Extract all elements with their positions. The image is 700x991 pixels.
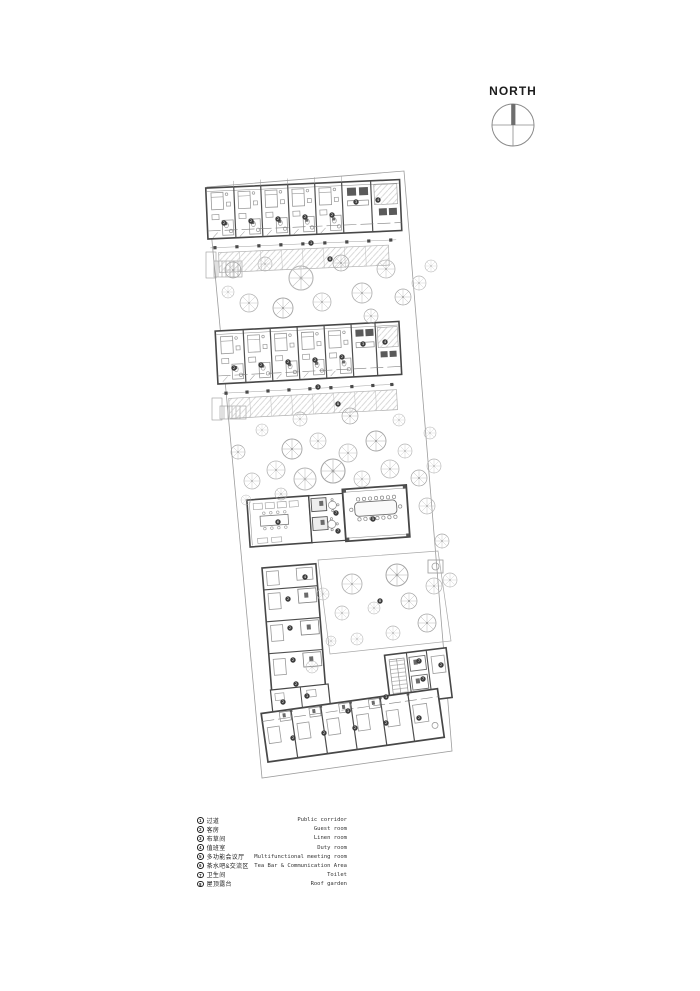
tree-icon <box>412 276 426 290</box>
svg-text:5: 5 <box>372 517 374 521</box>
tree-icon <box>342 408 358 424</box>
room-number-marker: 4 <box>382 339 387 344</box>
tree-icon <box>241 495 251 505</box>
svg-text:7: 7 <box>337 529 339 533</box>
svg-text:8: 8 <box>329 257 331 261</box>
legend-number-badge: 6 <box>197 862 204 869</box>
guest-room-strip-top <box>205 174 403 273</box>
svg-text:2: 2 <box>314 358 316 362</box>
tree-icon <box>240 294 258 312</box>
tree-icon <box>425 260 437 272</box>
tree-icon <box>386 626 400 640</box>
room-number-marker: 2 <box>231 365 236 370</box>
room-number-marker: 2 <box>438 662 443 667</box>
room-number-marker: 1 <box>304 693 309 698</box>
room-number-marker: 2 <box>290 657 295 662</box>
legend-label-en: Roof garden <box>311 881 347 887</box>
room-number-marker: 8 <box>327 256 332 261</box>
legend-row-meeting-room: 5 多功能会议厅 Multifunctional meeting room <box>197 853 347 860</box>
tree-icon <box>427 459 441 473</box>
north-compass-icon <box>488 100 538 150</box>
room-number-marker: 2 <box>416 715 421 720</box>
tree-icon <box>419 498 435 514</box>
room-number-marker: 2 <box>302 214 307 219</box>
legend-label-en: Tea Bar & Communication Area <box>254 863 347 869</box>
legend-label-zh: 茶水吧&交流区 <box>207 861 249 870</box>
legend-row-tea-bar: 6 茶水吧&交流区 Tea Bar & Communication Area <box>197 862 347 869</box>
tree-icon <box>225 262 241 278</box>
svg-text:1: 1 <box>347 709 349 713</box>
svg-text:6: 6 <box>277 520 279 524</box>
tree-icon <box>267 461 285 479</box>
svg-text:2: 2 <box>289 626 291 630</box>
legend-label-en: Multifunctional meeting room <box>254 854 347 860</box>
tree-icon <box>282 439 302 459</box>
svg-text:2: 2 <box>282 700 284 704</box>
legend-label-zh: 布草间 <box>207 834 226 843</box>
legend-row-duty-room: 4 值班室 Duty room <box>197 844 347 851</box>
room-number-marker: 1 <box>383 694 388 699</box>
room-number-marker: 3 <box>353 199 358 204</box>
room-number-marker: 2 <box>293 681 298 686</box>
tree-icon <box>256 424 268 436</box>
legend-row-guest-room: 2 客房 Guest room <box>197 826 347 833</box>
legend-number-badge: 7 <box>197 872 204 879</box>
legend-number-badge: 4 <box>197 844 204 851</box>
room-number-marker: 2 <box>329 212 334 217</box>
svg-text:2: 2 <box>354 726 356 730</box>
legend-row-public-corridor: 1 过道 Public corridor <box>197 817 347 824</box>
svg-text:2: 2 <box>292 736 294 740</box>
room-number-marker: 2 <box>287 625 292 630</box>
svg-text:2: 2 <box>233 366 235 370</box>
courtyard <box>318 551 451 654</box>
legend-number-badge: 1 <box>197 817 204 824</box>
legend-label-en: Toilet <box>327 872 347 878</box>
tree-icon <box>310 433 326 449</box>
svg-text:8: 8 <box>379 599 381 603</box>
tree-icon <box>335 606 349 620</box>
tree-icon <box>244 473 260 489</box>
svg-text:2: 2 <box>223 221 225 225</box>
svg-text:2: 2 <box>341 355 343 359</box>
tree-icon <box>354 471 370 487</box>
svg-text:2: 2 <box>287 597 289 601</box>
room-number-marker: 2 <box>321 730 326 735</box>
svg-text:2: 2 <box>418 716 420 720</box>
svg-text:4: 4 <box>304 575 306 579</box>
tree-icon <box>258 257 272 271</box>
roof-garden-band-top <box>219 245 390 272</box>
meeting-room <box>342 485 409 541</box>
tree-icon <box>393 414 405 426</box>
room-number-marker: 2 <box>258 362 263 367</box>
tree-icon <box>395 289 411 305</box>
svg-text:2: 2 <box>260 363 262 367</box>
svg-text:7: 7 <box>335 511 337 515</box>
tree-icon <box>352 283 372 303</box>
tree-icon <box>313 293 331 311</box>
tree-icon <box>222 286 234 298</box>
legend-label-zh: 屋顶露台 <box>207 879 232 888</box>
room-number-marker: 7 <box>420 676 425 681</box>
room-number-marker: 2 <box>275 216 280 221</box>
tree-icon <box>424 427 436 439</box>
room-number-marker: 8 <box>377 598 382 603</box>
room-number-marker: 7 <box>333 510 338 515</box>
room-number-marker: 2 <box>383 720 388 725</box>
north-label: NORTH <box>487 84 539 98</box>
tree-icon <box>289 266 313 290</box>
room-number-marker: 1 <box>315 384 320 389</box>
tree-icon <box>342 574 362 594</box>
svg-text:3: 3 <box>355 200 357 204</box>
room-number-marker: 4 <box>302 574 307 579</box>
tree-icon <box>411 470 427 486</box>
room-number-marker: 1 <box>345 708 350 713</box>
toilet-core <box>309 493 346 542</box>
legend: 1 过道 Public corridor 2 客房 Guest room 3 布… <box>197 817 347 887</box>
tree-icon <box>339 444 357 462</box>
room-number-marker: 2 <box>248 218 253 223</box>
legend-label-zh: 卫生间 <box>207 870 226 879</box>
legend-row-toilet: 7 卫生间 Toilet <box>197 872 347 879</box>
tree-icon <box>326 636 336 646</box>
svg-text:7: 7 <box>422 677 424 681</box>
floor-plan-drawing: 2222234182222234186775422228772121222221 <box>0 0 700 991</box>
room-number-marker: 2 <box>285 596 290 601</box>
room-number-marker: 2 <box>352 725 357 730</box>
tree-icon <box>306 661 318 673</box>
room-number-marker: 2 <box>280 699 285 704</box>
legend-label-zh: 过道 <box>207 816 220 825</box>
room-number-marker: 2 <box>290 735 295 740</box>
tree-icon <box>293 412 307 426</box>
tree-icon <box>401 593 417 609</box>
tree-icon <box>398 444 412 458</box>
legend-label-en: Guest room <box>314 826 347 832</box>
legend-row-linen-room: 3 布草间 Linen room <box>197 835 347 842</box>
room-number-marker: 2 <box>221 220 226 225</box>
tree-icon <box>368 602 380 614</box>
legend-label-zh: 值班室 <box>207 843 226 852</box>
meeting-hall-block <box>247 485 410 548</box>
guest-room-strip-second <box>215 321 403 419</box>
legend-label-en: Public corridor <box>297 817 347 823</box>
svg-text:2: 2 <box>385 721 387 725</box>
svg-text:2: 2 <box>331 213 333 217</box>
tree-icon <box>366 431 386 451</box>
legend-label-zh: 客房 <box>207 825 220 834</box>
legend-label-zh: 多功能会议厅 <box>207 852 245 861</box>
tree-icon <box>351 633 363 645</box>
svg-text:2: 2 <box>323 731 325 735</box>
room-number-marker: 4 <box>375 197 380 202</box>
garden-trees <box>222 255 457 673</box>
svg-text:1: 1 <box>310 241 312 245</box>
svg-text:1: 1 <box>306 694 308 698</box>
tree-icon <box>435 534 449 548</box>
svg-text:4: 4 <box>384 340 386 344</box>
tree-icon <box>426 578 442 594</box>
room-number-marker: 5 <box>370 516 375 521</box>
legend-label-en: Linen room <box>314 835 347 841</box>
tree-icon <box>294 468 316 490</box>
room-number-marker: 2 <box>339 354 344 359</box>
tree-icon <box>333 255 349 271</box>
svg-text:2: 2 <box>295 682 297 686</box>
room-number-marker: 1 <box>308 240 313 245</box>
tree-icon <box>386 564 408 586</box>
room-number-marker: 2 <box>312 357 317 362</box>
room-number-marker: 7 <box>335 528 340 533</box>
tree-icon <box>275 488 287 500</box>
legend-number-badge: 8 <box>197 881 204 888</box>
svg-text:4: 4 <box>377 198 379 202</box>
room-number-marker: 7 <box>416 658 421 663</box>
tree-icon <box>381 460 399 478</box>
tree-icon <box>317 588 329 600</box>
tree-icon <box>443 573 457 587</box>
svg-text:2: 2 <box>292 658 294 662</box>
drawing-sheet: 2222234182222234186775422228772121222221… <box>0 0 700 991</box>
svg-text:2: 2 <box>304 215 306 219</box>
tree-icon <box>418 614 436 632</box>
svg-text:8: 8 <box>337 402 339 406</box>
svg-text:1: 1 <box>385 695 387 699</box>
legend-number-badge: 5 <box>197 853 204 860</box>
tree-icon <box>273 298 293 318</box>
svg-text:2: 2 <box>287 360 289 364</box>
svg-text:7: 7 <box>418 659 420 663</box>
room-number-marker: 8 <box>335 401 340 406</box>
svg-text:2: 2 <box>250 219 252 223</box>
svg-text:1: 1 <box>317 385 319 389</box>
tree-icon <box>321 459 345 483</box>
guest-room-strip-lower-left <box>262 564 326 696</box>
svg-text:2: 2 <box>277 217 279 221</box>
room-number-marker: 6 <box>275 519 280 524</box>
legend-number-badge: 3 <box>197 835 204 842</box>
svg-text:3: 3 <box>362 342 364 346</box>
room-number-marker: 3 <box>360 341 365 346</box>
tree-icon <box>364 309 378 323</box>
legend-number-badge: 2 <box>197 826 204 833</box>
svg-text:2: 2 <box>440 663 442 667</box>
roof-garden-band-second <box>229 390 398 419</box>
legend-row-roof-garden: 8 屋顶露台 Roof garden <box>197 881 347 888</box>
tree-icon <box>377 260 395 278</box>
tree-icon <box>231 445 245 459</box>
legend-label-en: Duty room <box>317 845 347 851</box>
room-number-marker: 2 <box>285 359 290 364</box>
